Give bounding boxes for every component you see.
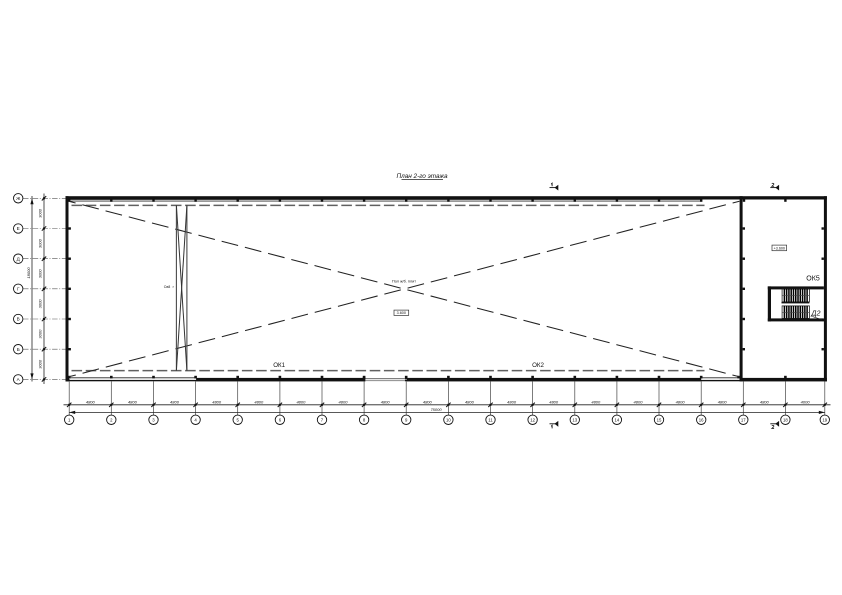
svg-text:12: 12	[530, 418, 535, 423]
svg-text:3000: 3000	[38, 359, 43, 369]
svg-text:4800: 4800	[339, 399, 349, 404]
svg-text:11: 11	[488, 418, 493, 423]
svg-text:3000: 3000	[38, 299, 43, 309]
svg-text:13: 13	[572, 418, 577, 423]
svg-text:План 2-го этажа: План 2-го этажа	[396, 173, 448, 180]
svg-text:4800: 4800	[549, 399, 559, 404]
svg-text:4800: 4800	[254, 399, 264, 404]
svg-text:3000: 3000	[38, 208, 43, 218]
svg-text:4800: 4800	[465, 399, 475, 404]
svg-text:4800: 4800	[296, 399, 306, 404]
svg-text:4800: 4800	[423, 399, 433, 404]
svg-text:Пол ж/б. плит: Пол ж/б. плит	[392, 280, 416, 284]
svg-text:17: 17	[741, 418, 746, 423]
svg-text:18: 18	[783, 418, 788, 423]
svg-text:4000: 4000	[801, 399, 811, 404]
svg-text:3000: 3000	[38, 269, 43, 279]
svg-text:4800: 4800	[381, 399, 391, 404]
svg-text:14: 14	[615, 418, 620, 423]
svg-text:4800: 4800	[170, 399, 180, 404]
svg-text:Ж: Ж	[16, 196, 21, 201]
svg-text:16: 16	[699, 418, 704, 423]
svg-text:4800: 4800	[591, 399, 601, 404]
svg-text:ОК1: ОК1	[273, 362, 285, 369]
svg-text:10: 10	[446, 418, 451, 423]
svg-text:15: 15	[657, 418, 662, 423]
svg-text:3.600: 3.600	[397, 311, 406, 315]
svg-text:Д2: Д2	[810, 309, 820, 318]
svg-text:4800: 4800	[718, 399, 728, 404]
svg-text:ОК5: ОК5	[806, 275, 820, 282]
svg-text:В: В	[17, 317, 20, 322]
svg-text:4800: 4800	[128, 399, 138, 404]
svg-text:18000: 18000	[26, 267, 31, 279]
svg-text:4800: 4800	[507, 399, 517, 404]
svg-text:3000: 3000	[38, 329, 43, 339]
svg-text:+3.600: +3.600	[774, 247, 785, 251]
svg-text:4800: 4800	[212, 399, 222, 404]
svg-text:4800: 4800	[634, 399, 644, 404]
svg-text:Е: Е	[17, 226, 20, 231]
svg-text:3000: 3000	[38, 238, 43, 248]
svg-text:4800: 4800	[760, 399, 770, 404]
svg-text:4800: 4800	[676, 399, 686, 404]
svg-text:ОК2: ОК2	[532, 362, 544, 369]
svg-text:Св8: Св8	[164, 285, 171, 289]
svg-text:19: 19	[822, 418, 827, 423]
svg-text:4800: 4800	[86, 399, 96, 404]
svg-text:75000: 75000	[430, 407, 442, 412]
svg-text:Б: Б	[17, 347, 20, 352]
